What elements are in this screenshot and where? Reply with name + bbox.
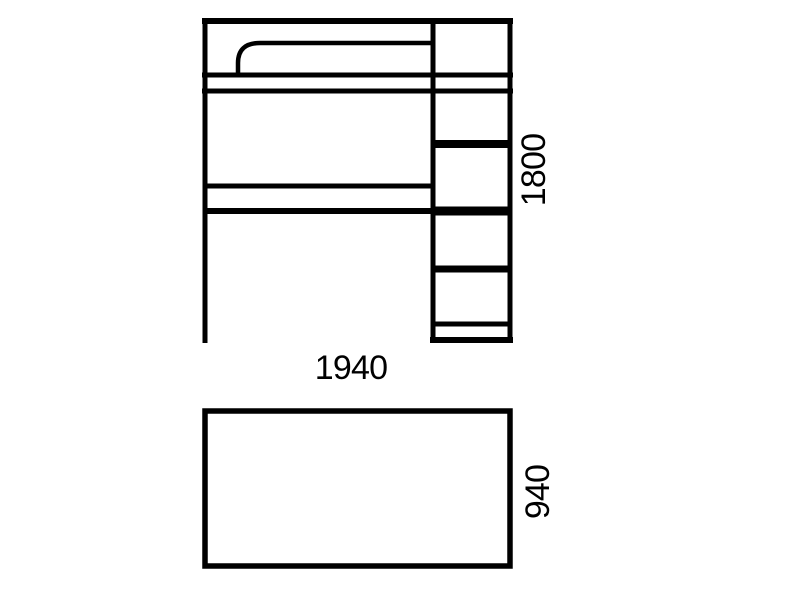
loft-bed-dimension-drawing: 1940 1800 940 [0, 0, 800, 600]
technical-drawing-canvas: 1940 1800 940 [0, 0, 800, 600]
depth-dimension-label: 940 [519, 465, 557, 519]
height-dimension-label: 1800 [515, 134, 553, 206]
plan-view-outline-rect [205, 411, 510, 566]
guard-rail-curve [238, 43, 433, 76]
front-elevation-view [202, 18, 513, 343]
drawing-linework [202, 18, 513, 566]
plan-view [205, 411, 510, 566]
width-dimension-label: 1940 [315, 349, 387, 387]
